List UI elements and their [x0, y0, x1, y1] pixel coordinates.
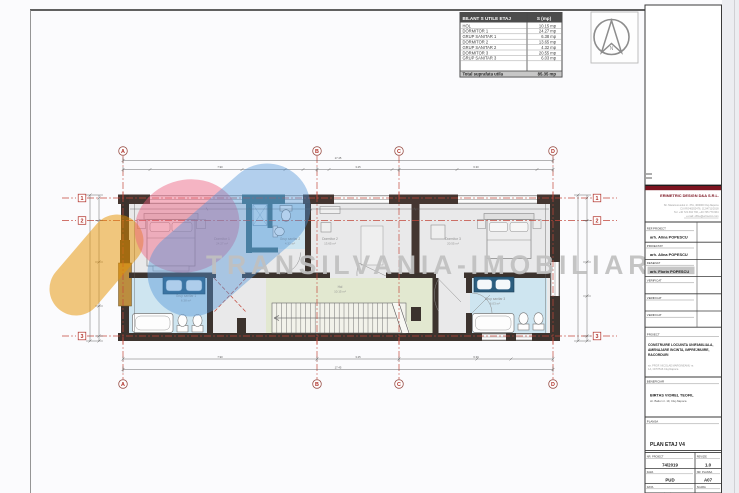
svg-text:DESENAT: DESENAT [647, 261, 661, 265]
svg-text:BENEFICIAR: BENEFICIAR [647, 380, 664, 384]
svg-text:A: A [121, 149, 125, 155]
svg-text:13.65 mp: 13.65 mp [539, 40, 557, 45]
svg-text:85.35 mp: 85.35 mp [538, 72, 557, 77]
svg-text:GRUP SANITAR 2: GRUP SANITAR 2 [463, 45, 497, 50]
svg-text:B: B [315, 382, 319, 388]
svg-text:PROIECT: PROIECT [647, 332, 660, 336]
svg-text:VERIFICAT: VERIFICAT [647, 313, 662, 317]
svg-text:AMENAJARE INCINTA, IMPREJM: AMENAJARE INCINTA, IMPREJMUIRE, [648, 348, 710, 352]
svg-text:6.03 m²: 6.03 m² [490, 302, 500, 306]
svg-text:Dormitor 2: Dormitor 2 [322, 237, 338, 241]
svg-text:BILANT S UTILE ETAJ: BILANT S UTILE ETAJ [463, 16, 512, 21]
svg-text:e-mail: office@erimetric.com: e-mail: office@erimetric.com [686, 214, 718, 218]
svg-text:str. Bailor nr. 19, Cluj-Na: str. Bailor nr. 19, Cluj-Napoca [650, 399, 687, 403]
svg-text:3: 3 [596, 334, 599, 340]
svg-text:DATA: DATA [647, 485, 654, 489]
svg-text:VERIFICAT: VERIFICAT [647, 279, 662, 283]
svg-text:17.45: 17.45 [335, 156, 342, 160]
svg-text:PLAN ETAJ V4: PLAN ETAJ V4 [650, 442, 685, 448]
svg-text:REVIZIE: REVIZIE [697, 455, 707, 459]
svg-text:NR. PROIECT: NR. PROIECT [647, 455, 664, 459]
svg-text:Str. Maramuresului nr. 37A, 40: Str. Maramuresului nr. 37A, 400000 Cluj-… [664, 203, 719, 207]
svg-text:A07: A07 [704, 478, 713, 483]
svg-text:13.65 m²: 13.65 m² [324, 242, 336, 246]
svg-text:HOL: HOL [463, 23, 472, 28]
svg-text:arh. Alina POPESCU: arh. Alina POPESCU [650, 235, 688, 240]
svg-text:Dormitor 3: Dormitor 3 [445, 237, 461, 241]
svg-text:GRUP SANITAR 1: GRUP SANITAR 1 [463, 34, 497, 39]
svg-text:SCARA: SCARA [697, 485, 706, 489]
svg-text:arh. Florin POPESCU: arh. Florin POPESCU [650, 269, 689, 274]
svg-text:Tel: +40 722 304 736, +40 745: Tel: +40 722 304 736, +40 745 779 964 [674, 210, 719, 214]
svg-text:20.55 mp: 20.55 mp [539, 50, 557, 55]
svg-text:str. PROF. NICOLAE MARGINEA: str. PROF. NICOLAE MARGINEANU nr. [648, 363, 694, 367]
svg-text:GRUP SANITAR 3: GRUP SANITAR 3 [463, 56, 497, 61]
svg-text:74/2019: 74/2019 [662, 462, 678, 467]
svg-text:4.32 mp: 4.32 mp [541, 45, 557, 50]
svg-text:PROIECTAT: PROIECTAT [647, 244, 663, 248]
svg-text:RACORDURI: RACORDURI [648, 353, 669, 357]
svg-text:3.25: 3.25 [355, 165, 361, 169]
svg-text:6.03 mp: 6.03 mp [541, 56, 557, 61]
svg-text:DORMITOR 2: DORMITOR 2 [463, 40, 489, 45]
svg-text:2: 2 [81, 219, 84, 225]
svg-text:C: C [397, 382, 401, 388]
svg-text:6.38 mp: 6.38 mp [541, 34, 557, 39]
svg-text:2: 2 [596, 219, 599, 225]
svg-text:24.27 mp: 24.27 mp [539, 29, 557, 34]
svg-text:3.25: 3.25 [355, 355, 361, 359]
svg-text:10.15 mp: 10.15 mp [539, 23, 557, 28]
svg-text:CONSTRUIRE LOCUINTA UNIFAMIL: CONSTRUIRE LOCUINTA UNIFAMILIALA, [648, 343, 713, 347]
svg-text:ERIMETRIC DESIGN D&A S.R.L.: ERIMETRIC DESIGN D&A S.R.L. [660, 193, 719, 198]
svg-text:NR. PLANSA: NR. PLANSA [697, 470, 713, 474]
svg-text:BIRTAS VIOREL TEOFIL: BIRTAS VIOREL TEOFIL [650, 394, 694, 398]
svg-text:Grup sanitar 3: Grup sanitar 3 [485, 297, 505, 301]
svg-text:1.0: 1.0 [705, 462, 712, 467]
svg-text:10.15 m²: 10.15 m² [334, 290, 346, 294]
svg-text:1: 1 [596, 196, 599, 202]
svg-text:S (mp): S (mp) [537, 16, 552, 21]
svg-text:6.30: 6.30 [473, 355, 479, 359]
svg-text:TRANSILVANIA-IMOBILIAR: TRANSILVANIA-IMOBILIAR [206, 250, 652, 280]
svg-text:DORMITOR 1: DORMITOR 1 [463, 29, 489, 34]
svg-text:Hol: Hol [338, 285, 343, 289]
svg-text:arh. Alina POPESCU: arh. Alina POPESCU [650, 252, 688, 257]
svg-text:DORMITOR 3: DORMITOR 3 [463, 50, 489, 55]
svg-text:3: 3 [81, 334, 84, 340]
svg-text:20.55 m²: 20.55 m² [447, 242, 459, 246]
svg-text:PUD: PUD [665, 478, 674, 483]
svg-text:1: 1 [81, 196, 84, 202]
svg-text:FAZA: FAZA [647, 470, 654, 474]
svg-text:7.90: 7.90 [217, 355, 223, 359]
svg-text:CUI RO40352476, J12/4711/2018: CUI RO40352476, J12/4711/2018 [680, 207, 719, 211]
svg-text:17.45: 17.45 [335, 365, 342, 369]
svg-text:D: D [551, 149, 555, 155]
svg-text:Total suprafata utila: Total suprafata utila [463, 72, 504, 77]
svg-text:1A, CF57516 Cluj-Napoca: 1A, CF57516 Cluj-Napoca [648, 367, 679, 371]
svg-text:7.90: 7.90 [217, 165, 223, 169]
svg-text:B: B [315, 149, 319, 155]
svg-text:C: C [397, 149, 401, 155]
svg-text:A: A [121, 382, 125, 388]
svg-text:D: D [551, 382, 555, 388]
svg-text:REF.PROIECT: REF.PROIECT [647, 227, 666, 231]
svg-text:VERIFICAT: VERIFICAT [647, 296, 662, 300]
svg-text:N: N [610, 46, 614, 52]
svg-text:PLANSA: PLANSA [647, 420, 658, 424]
svg-text:6.30: 6.30 [473, 165, 479, 169]
